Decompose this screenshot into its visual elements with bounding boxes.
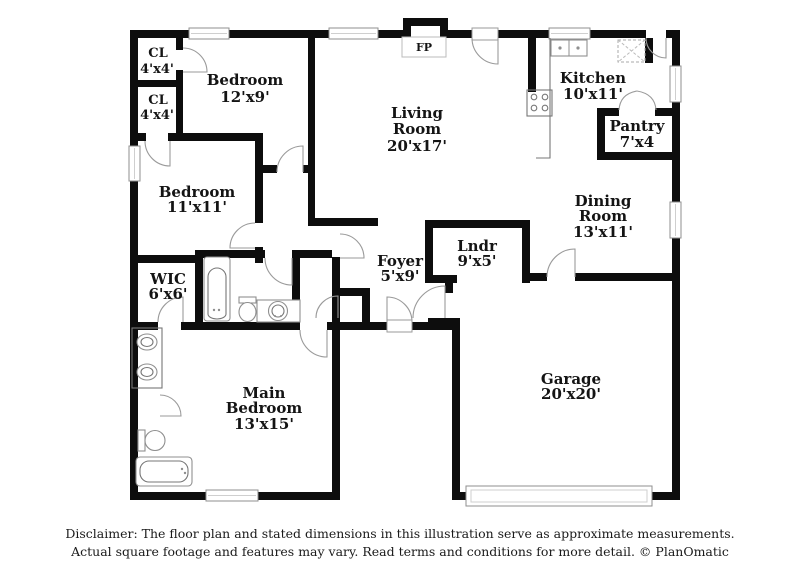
bedroom12-door [277, 146, 303, 172]
garage-door [466, 486, 652, 506]
front-door [472, 28, 498, 64]
closet2-door [145, 141, 170, 166]
main-bath-door [160, 395, 181, 416]
pantry-double-doors [619, 91, 656, 110]
toilet-icon [239, 297, 256, 322]
room-dims-cl1: 4'x4' [140, 62, 174, 77]
room-dims-pantry: 7'x4 [620, 133, 654, 151]
window-kitchen [549, 28, 590, 39]
vanity-sink-icon [257, 300, 300, 322]
window-pantry-side [670, 66, 681, 102]
floor-plan-page: CL 4'x4' CL 4'x4' Bedroom 12'x9' Living … [0, 0, 800, 582]
window-living [329, 28, 378, 39]
room-dims-living: 20'x17' [387, 137, 447, 155]
main-bedroom-door [300, 330, 327, 357]
bedroom11-door [230, 223, 255, 248]
window-bedroom11 [129, 146, 140, 181]
room-dims-kitchen: 10'x11' [563, 85, 623, 103]
room-dims-main-bedroom: 13'x15' [234, 415, 294, 433]
floor-plan-canvas: CL 4'x4' CL 4'x4' Bedroom 12'x9' Living … [0, 0, 800, 582]
room-labels: CL 4'x4' CL 4'x4' Bedroom 12'x9' Living … [140, 41, 666, 433]
room-label-cl1: CL [148, 46, 168, 61]
closet1-door [183, 48, 207, 72]
kitchen-sink-icon [551, 40, 587, 56]
double-sink-icon [137, 334, 157, 380]
disclaimer-line1: Disclaimer: The floor plan and stated di… [65, 526, 734, 541]
hall-bath-door [265, 258, 292, 285]
room-dims-laundry: 9'x5' [457, 252, 496, 270]
window-bedroom12 [189, 28, 229, 39]
room-dims-dining: 13'x11' [573, 223, 633, 241]
disclaimer: Disclaimer: The floor plan and stated di… [65, 526, 734, 559]
room-dims-wic: 6'x6' [148, 285, 187, 303]
room-dims-garage: 20'x20' [541, 385, 601, 403]
stove-icon [527, 90, 552, 116]
room-label-bedroom12: Bedroom [207, 71, 284, 89]
disclaimer-line2: Actual square footage and features may v… [70, 544, 729, 559]
room-dims-foyer: 5'x9' [380, 267, 419, 285]
fireplace-bump [403, 18, 448, 38]
room-dims-bedroom12: 12'x9' [220, 88, 269, 106]
main-toilet-icon [138, 430, 165, 451]
room-label-living-2: Room [393, 120, 441, 138]
room-dims-bedroom11: 11'x11' [167, 198, 227, 216]
main-bathtub-icon [136, 457, 192, 486]
back-door [387, 297, 412, 332]
dining-door [547, 249, 575, 277]
room-dims-cl2: 4'x4' [140, 108, 174, 123]
garage-entry-door [413, 286, 445, 318]
bathtub-icon [204, 257, 230, 321]
window-dining [670, 202, 681, 238]
washer-box-icon [618, 40, 645, 62]
fireplace-label: FP [416, 41, 432, 54]
room-label-cl2: CL [148, 93, 168, 108]
window-main-bedroom [206, 490, 258, 501]
foyer-hall-door [340, 234, 364, 258]
